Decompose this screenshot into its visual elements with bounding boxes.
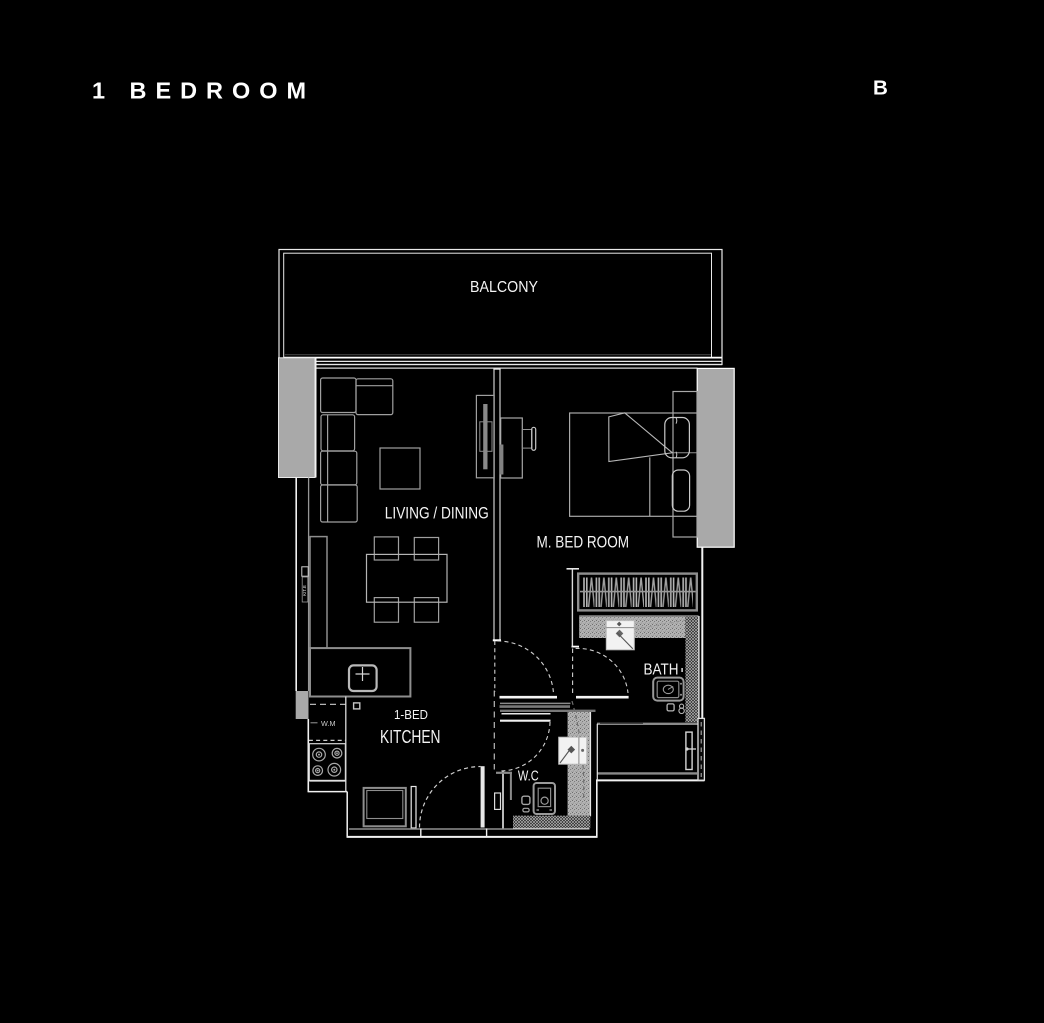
svg-text:W.M: W.M xyxy=(321,719,336,728)
svg-text:W.C: W.C xyxy=(518,768,539,784)
svg-text:1 BEDROOM: 1 BEDROOM xyxy=(92,78,315,104)
svg-text:1-BED: 1-BED xyxy=(394,708,428,722)
svg-text:BALCONY: BALCONY xyxy=(470,279,538,296)
svg-text:B: B xyxy=(873,77,888,100)
svg-text:M. BED ROOM: M. BED ROOM xyxy=(537,534,630,552)
svg-text:KITCHEN: KITCHEN xyxy=(380,727,441,747)
svg-text:BATH: BATH xyxy=(644,662,679,679)
svg-text:LIVING / DINING: LIVING / DINING xyxy=(385,503,489,522)
svg-text:KIT.B: KIT.B xyxy=(302,585,307,596)
